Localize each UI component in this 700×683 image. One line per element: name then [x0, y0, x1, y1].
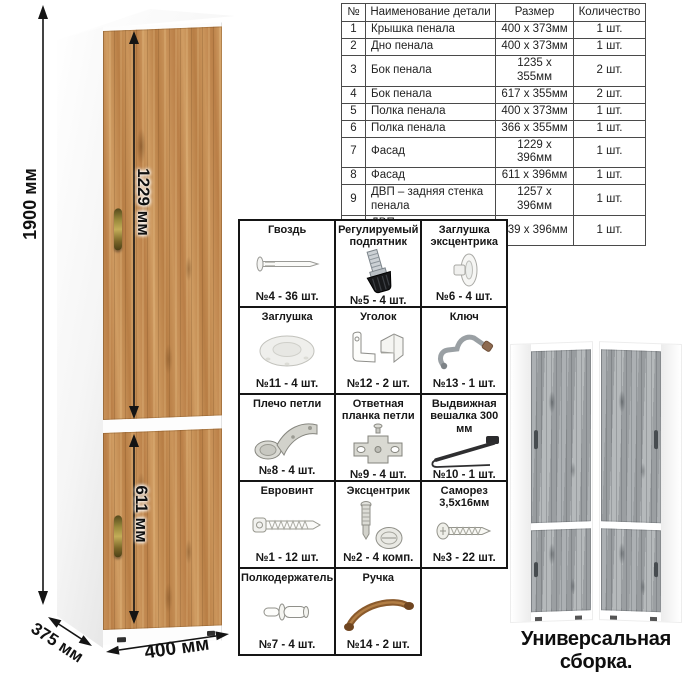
hardware-cell: Евровинт №1 - 12 шт.	[239, 481, 335, 568]
hardware-cell: Саморез 3,5х16мм №3 - 22 шт.	[421, 481, 507, 568]
part-number: 3	[342, 56, 366, 87]
hardware-item-count: №1 - 12 шт.	[256, 552, 319, 564]
part-number: 8	[342, 168, 366, 185]
hardware-item-name: Заглушка	[262, 311, 313, 323]
hardware-item-name: Ключ	[450, 311, 479, 323]
hardware-item-count: №14 - 2 шт.	[347, 639, 410, 651]
hardware-item-count: №2 - 4 комп.	[343, 552, 413, 564]
part-qty: 2 шт.	[574, 56, 646, 87]
part-number: 5	[342, 103, 366, 120]
hardware-item-name: Евровинт	[261, 485, 314, 497]
height-dimension-arrow	[38, 5, 48, 605]
cam-lock-icon	[349, 497, 407, 552]
self-tapping-screw-icon	[435, 510, 493, 552]
hardware-item-name: Заглушка эксцентрика	[423, 224, 505, 249]
hardware-table: Гвоздь №4 - 36 шт. Регулируемый подпятни…	[238, 219, 508, 656]
hardware-cell: Регулируемый подпятник №5 - 4 шт.	[335, 220, 421, 307]
hardware-item-name: Полкодержатель	[241, 572, 333, 584]
hardware-item-count: №5 - 4 шт.	[350, 295, 406, 307]
universal-assembly-caption: Универсальная сборка.	[489, 628, 700, 674]
variant-side-panel	[511, 344, 531, 622]
hardware-item-name: Регулируемый подпятник	[337, 224, 419, 249]
cabinet-foot	[117, 637, 126, 642]
hardware-cell: Плечо петли №8 - 4 шт.	[239, 394, 335, 481]
part-qty: 1 шт.	[574, 215, 646, 246]
variant-lower-door	[531, 528, 591, 612]
table-row: 7Фасад1229 х 396мм1 шт.	[342, 137, 646, 168]
part-qty: 1 шт.	[574, 185, 646, 216]
hardware-item-name: Саморез 3,5х16мм	[423, 485, 505, 510]
col-header-number: №	[342, 4, 366, 22]
variant-upper-door	[601, 349, 661, 523]
part-name: Дно пенала	[366, 39, 496, 56]
part-qty: 2 шт.	[574, 86, 646, 103]
table-row: 4Бок пенала617 х 355мм2 шт.	[342, 86, 646, 103]
part-qty: 1 шт.	[574, 120, 646, 137]
hardware-cell: Ответная планка петли №9 - 4 шт.	[335, 394, 421, 481]
cap-icon	[256, 323, 318, 378]
height-dimension-label: 1900 мм	[20, 149, 40, 259]
variant-cabinet-left	[511, 342, 592, 622]
variant-door-handle	[534, 562, 538, 577]
cam-cap-icon	[442, 249, 486, 291]
hardware-item-count: №7 - 4 шт.	[259, 639, 315, 651]
hardware-item-count: №9 - 4 шт.	[350, 469, 406, 481]
part-name: Бок пенала	[366, 86, 496, 103]
hardware-item-count: №11 - 4 шт.	[256, 378, 318, 390]
part-name: Полка пенала	[366, 103, 496, 120]
parts-table: № Наименование детали Размер Количество …	[341, 3, 646, 246]
variant-foot	[650, 617, 657, 621]
hardware-item-name: Плечо петли	[253, 398, 321, 410]
hinge-arm-icon	[253, 410, 321, 465]
col-header-size: Размер	[496, 4, 574, 22]
hardware-cell: Ручка №14 - 2 шт.	[335, 568, 421, 655]
shelf-pin-icon	[260, 584, 314, 639]
part-number: 4	[342, 86, 366, 103]
part-size: 366 х 355мм	[496, 120, 574, 137]
part-name: Полка пенала	[366, 120, 496, 137]
variant-door-handle	[654, 430, 658, 449]
variant-cabinet-right	[600, 342, 681, 622]
part-name: Фасад	[366, 168, 496, 185]
hardware-item-count: №8 - 4 шт.	[259, 465, 315, 477]
hardware-cell: Уголок №12 - 2 шт.	[335, 307, 421, 394]
hardware-cell: Заглушка эксцентрика №6 - 4 шт.	[421, 220, 507, 307]
hardware-item-name: Ответная планка петли	[337, 398, 419, 423]
assembly-scheme-page: 1900 мм 1229 мм 611 мм 375 мм 400 мм № Н…	[0, 0, 700, 683]
part-qty: 1 шт.	[574, 168, 646, 185]
adjustable-foot-icon	[358, 249, 398, 295]
hardware-cell: Гвоздь №4 - 36 шт.	[239, 220, 335, 307]
hardware-cell: Эксцентрик №2 - 4 комп.	[335, 481, 421, 568]
part-size: 1235 х 355мм	[496, 56, 574, 87]
nail-icon	[253, 236, 321, 291]
table-row: 6Полка пенала366 х 355мм1 шт.	[342, 120, 646, 137]
col-header-name: Наименование детали	[366, 4, 496, 22]
variant-door-handle	[654, 562, 658, 577]
key-icon	[434, 323, 494, 378]
hardware-item-count: №10 - 1 шт.	[433, 469, 496, 481]
part-name: Крышка пенала	[366, 22, 496, 39]
hardware-cell: Выдвижная вешалка 300 мм №10 - 1 шт.	[421, 394, 507, 481]
part-number: 9	[342, 185, 366, 216]
part-size: 400 х 373мм	[496, 39, 574, 56]
part-qty: 1 шт.	[574, 103, 646, 120]
hardware-item-name: Гвоздь	[268, 224, 306, 236]
part-qty: 1 шт.	[574, 39, 646, 56]
table-row: 2Дно пенала400 х 373мм1 шт.	[342, 39, 646, 56]
part-name: Фасад	[366, 137, 496, 168]
corner-bracket-icon	[346, 323, 410, 378]
variant-door-handle	[534, 430, 538, 449]
variant-lower-door	[601, 528, 661, 612]
part-name: Бок пенала	[366, 56, 496, 87]
cabinet-side-panel	[57, 11, 103, 648]
part-number: 1	[342, 22, 366, 39]
table-row: 5Полка пенала400 х 373мм1 шт.	[342, 103, 646, 120]
upper-door-dimension-label: 1229 мм	[133, 147, 153, 257]
hardware-cell: Заглушка №11 - 4 шт.	[239, 307, 335, 394]
table-row: 1Крышка пенала400 х 373мм1 шт.	[342, 22, 646, 39]
variant-foot	[535, 617, 542, 621]
cabinet-front-face	[103, 22, 222, 645]
part-size: 1229 х 396мм	[496, 137, 574, 168]
variant-upper-door	[531, 349, 591, 523]
part-size: 400 х 373мм	[496, 22, 574, 39]
hinge-plate-icon	[350, 423, 406, 469]
hardware-item-count: №13 - 1 шт.	[433, 378, 496, 390]
part-size: 1257 х 396мм	[496, 185, 574, 216]
hardware-item-count: №12 - 2 шт.	[347, 378, 410, 390]
hardware-cell: Ключ №13 - 1 шт.	[421, 307, 507, 394]
part-number: 6	[342, 120, 366, 137]
hardware-item-name: Выдвижная вешалка 300 мм	[423, 398, 505, 435]
table-row: 3Бок пенала1235 х 355мм2 шт.	[342, 56, 646, 87]
table-row: 8Фасад611 х 396мм1 шт.	[342, 168, 646, 185]
part-size: 611 х 396мм	[496, 168, 574, 185]
part-size: 400 х 373мм	[496, 103, 574, 120]
hardware-item-count: №3 - 22 шт.	[433, 552, 496, 564]
lower-door-dimension-label: 611 мм	[131, 459, 151, 569]
lower-door-handle	[114, 515, 122, 557]
hardware-item-count: №4 - 36 шт.	[256, 291, 319, 303]
table-row: 9ДВП – задняя стенка пенала1257 х 396мм1…	[342, 185, 646, 216]
variant-foot	[575, 616, 582, 620]
euro-screw-icon	[251, 497, 323, 552]
upper-door-handle	[114, 208, 122, 250]
part-qty: 1 шт.	[574, 22, 646, 39]
pullout-hanger-icon	[426, 435, 502, 469]
variant-foot	[610, 616, 617, 620]
hardware-cell: Полкодержатель №7 - 4 шт.	[239, 568, 335, 655]
handle-icon	[340, 584, 416, 639]
part-name: ДВП – задняя стенка пенала	[366, 185, 496, 216]
part-number: 7	[342, 137, 366, 168]
hardware-item-count: №6 - 4 шт.	[436, 291, 492, 303]
part-qty: 1 шт.	[574, 137, 646, 168]
hardware-item-name: Ручка	[363, 572, 394, 584]
part-size: 617 х 355мм	[496, 86, 574, 103]
hardware-item-name: Эксцентрик	[347, 485, 410, 497]
col-header-qty: Количество	[574, 4, 646, 22]
hardware-item-name: Уголок	[360, 311, 396, 323]
variant-side-panel	[661, 344, 681, 622]
part-number: 2	[342, 39, 366, 56]
parts-table-header-row: № Наименование детали Размер Количество	[342, 4, 646, 22]
